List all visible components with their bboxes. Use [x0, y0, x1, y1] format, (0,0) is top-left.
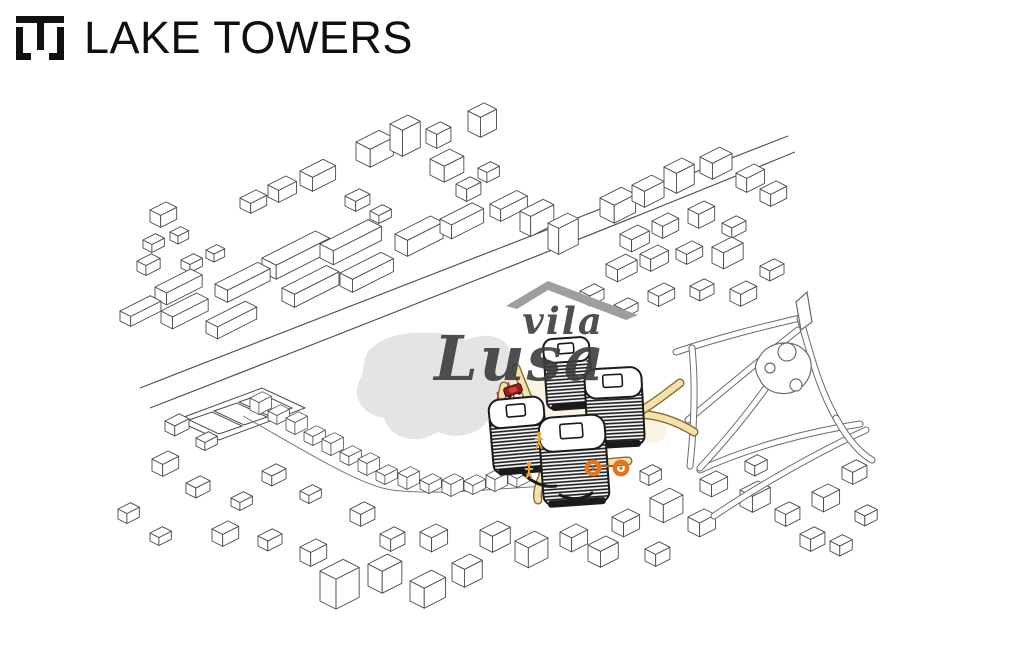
- lake-towers-monogram-icon[interactable]: [14, 14, 66, 62]
- site-plan-map: [0, 0, 1023, 669]
- header: LAKE TOWERS: [14, 14, 413, 62]
- page: vila Lusa LAKE TOWERS: [0, 0, 1023, 669]
- page-title: LAKE TOWERS: [84, 14, 413, 62]
